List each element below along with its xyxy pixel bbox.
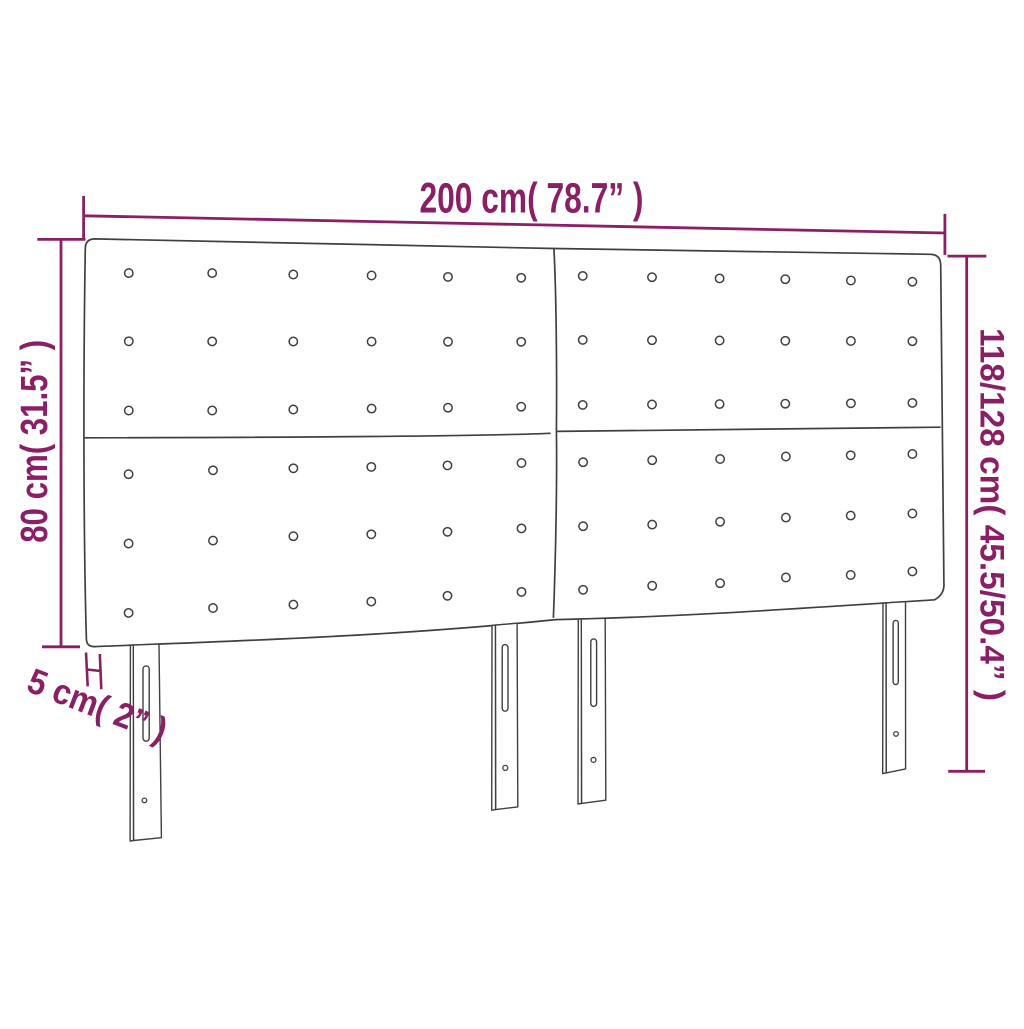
svg-text:118/128 cm( 45.5/50.4” ): 118/128 cm( 45.5/50.4” ) xyxy=(973,328,1011,701)
svg-text:200 cm( 78.7” ): 200 cm( 78.7” ) xyxy=(420,175,644,223)
svg-text:80 cm( 31.5” ): 80 cm( 31.5” ) xyxy=(14,340,56,543)
